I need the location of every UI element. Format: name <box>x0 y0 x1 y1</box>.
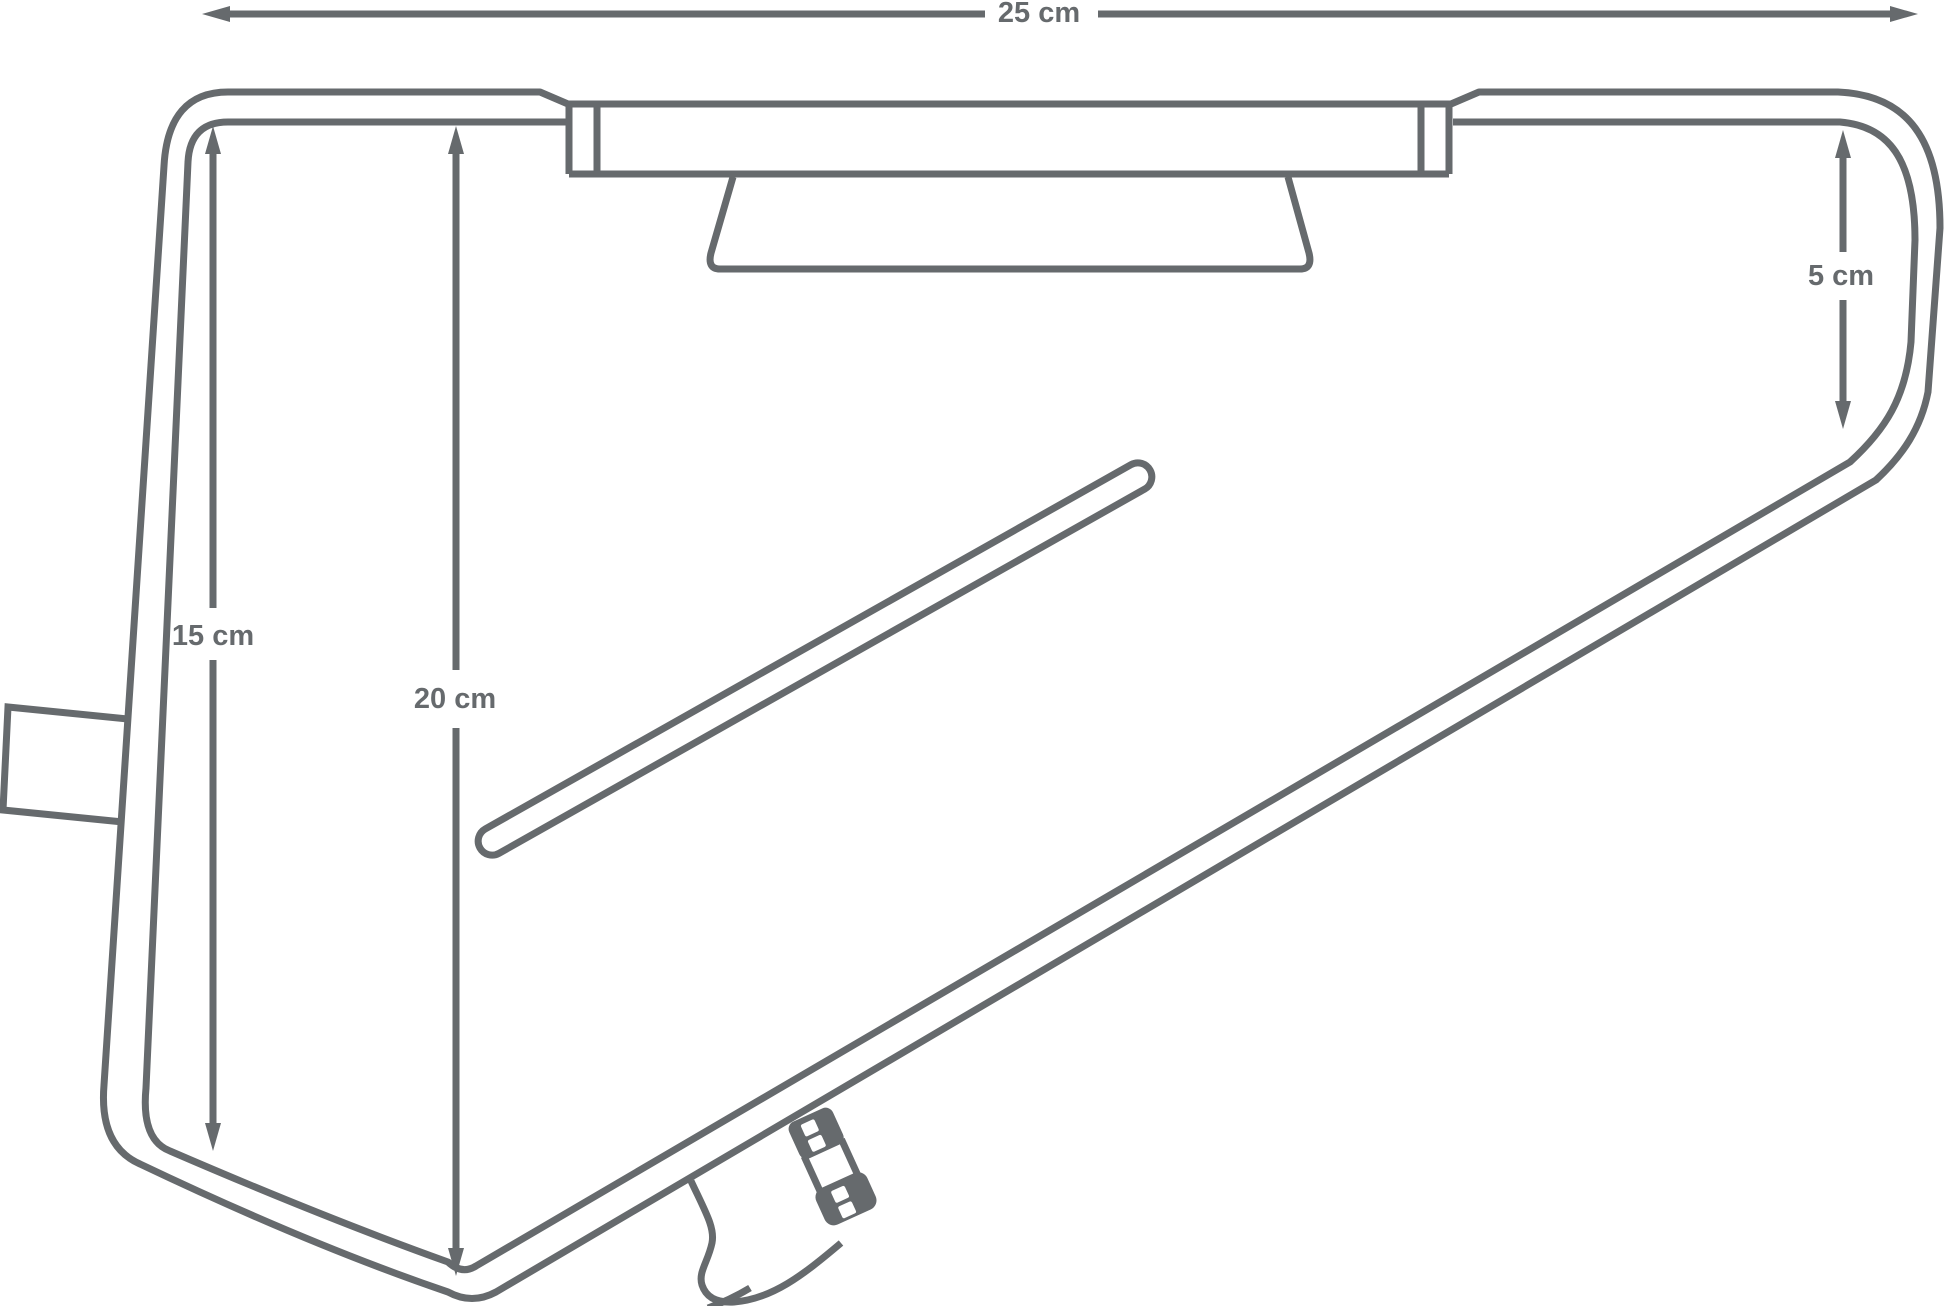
svg-text:20 cm: 20 cm <box>414 683 496 715</box>
svg-text:25 cm: 25 cm <box>998 0 1080 29</box>
svg-text:15 cm: 15 cm <box>172 620 254 652</box>
svg-text:5 cm: 5 cm <box>1808 260 1874 292</box>
